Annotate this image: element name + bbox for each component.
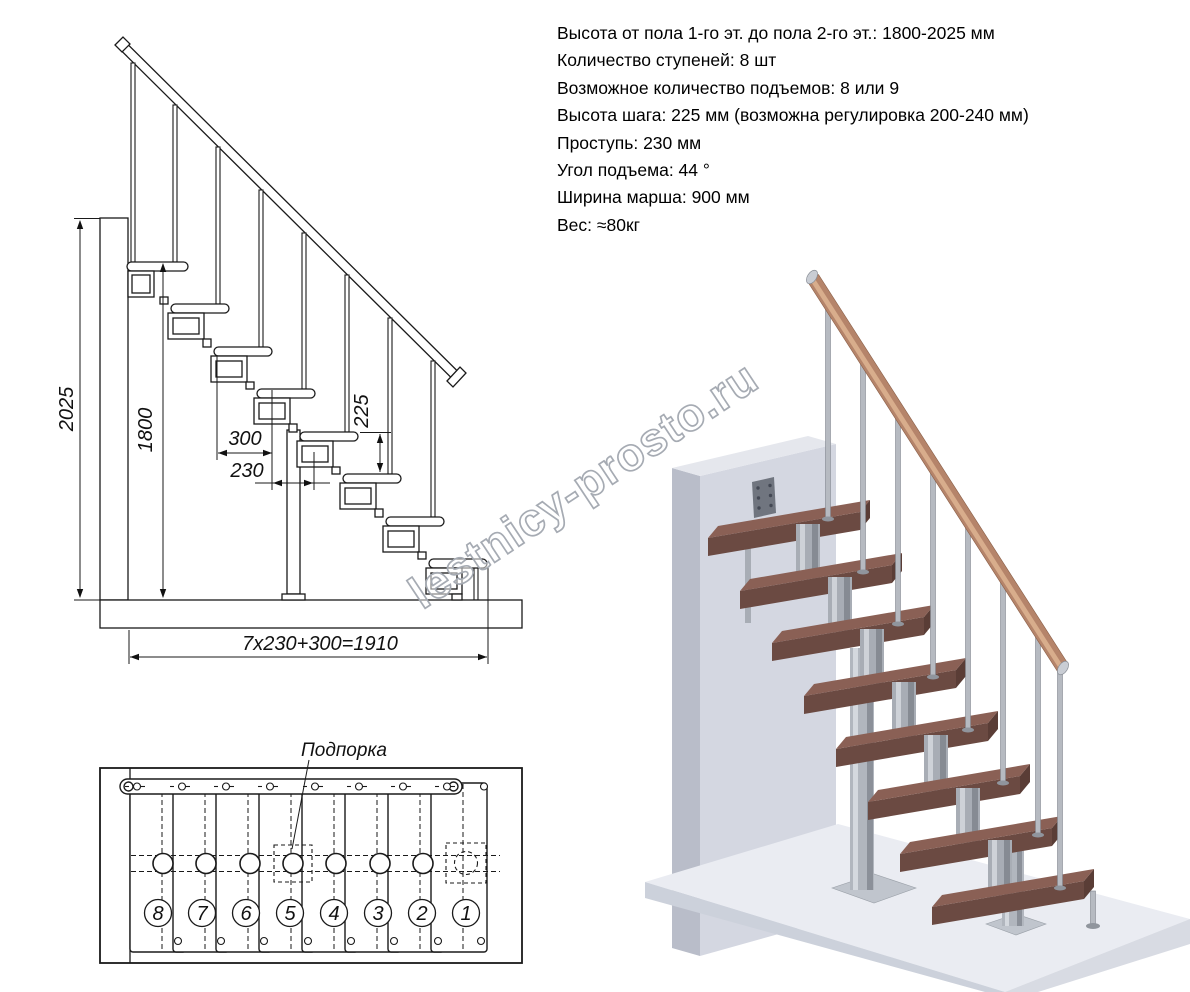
wall-mount-plate: [752, 477, 776, 518]
step-number: 8: [152, 903, 163, 925]
plan-view: Подпорка 8 7 6 5 4 3: [100, 740, 522, 963]
floor-base: [100, 600, 522, 628]
step-number: 3: [372, 903, 383, 925]
dim-step-height: 225: [351, 393, 373, 428]
step-number: 6: [240, 903, 252, 925]
dim-tread-length: 300: [228, 428, 261, 450]
dim-going: 230: [229, 460, 263, 482]
step-number: 5: [284, 903, 296, 925]
dim-total-run: 7x230+300=1910: [242, 633, 398, 655]
wall-section: [100, 218, 128, 600]
step-number: 1: [460, 903, 471, 925]
dim-rail-height: 1800: [135, 408, 157, 453]
spec-list: Высота от пола 1-го эт. до пола 2-го эт.…: [557, 20, 1157, 239]
step-number: 4: [328, 903, 339, 925]
plan-treads: [130, 783, 487, 952]
spec-line: Высота от пола 1-го эт. до пола 2-го эт.…: [557, 20, 1157, 47]
spec-line: Ширина марша: 900 мм: [557, 184, 1157, 211]
spec-line: Проступь: 230 мм: [557, 130, 1157, 157]
staircase-spec-sheet: 2025 1800 300 230 225 7x230+300=1910: [0, 0, 1190, 992]
support-label: Подпорка: [301, 740, 387, 761]
spec-line: Вес: ≈80кг: [557, 212, 1157, 239]
spec-line: Угол подъема: 44 °: [557, 157, 1157, 184]
spec-line: Высота шага: 225 мм (возможна регулировк…: [557, 102, 1157, 129]
end-floor-post: [1091, 891, 1096, 925]
spec-line: Количество ступеней: 8 шт: [557, 47, 1157, 74]
step-number: 7: [196, 903, 208, 925]
step-number: 2: [415, 903, 427, 925]
spec-line: Возможное количество подъемов: 8 или 9: [557, 75, 1157, 102]
dim-total-height: 2025: [56, 386, 78, 432]
